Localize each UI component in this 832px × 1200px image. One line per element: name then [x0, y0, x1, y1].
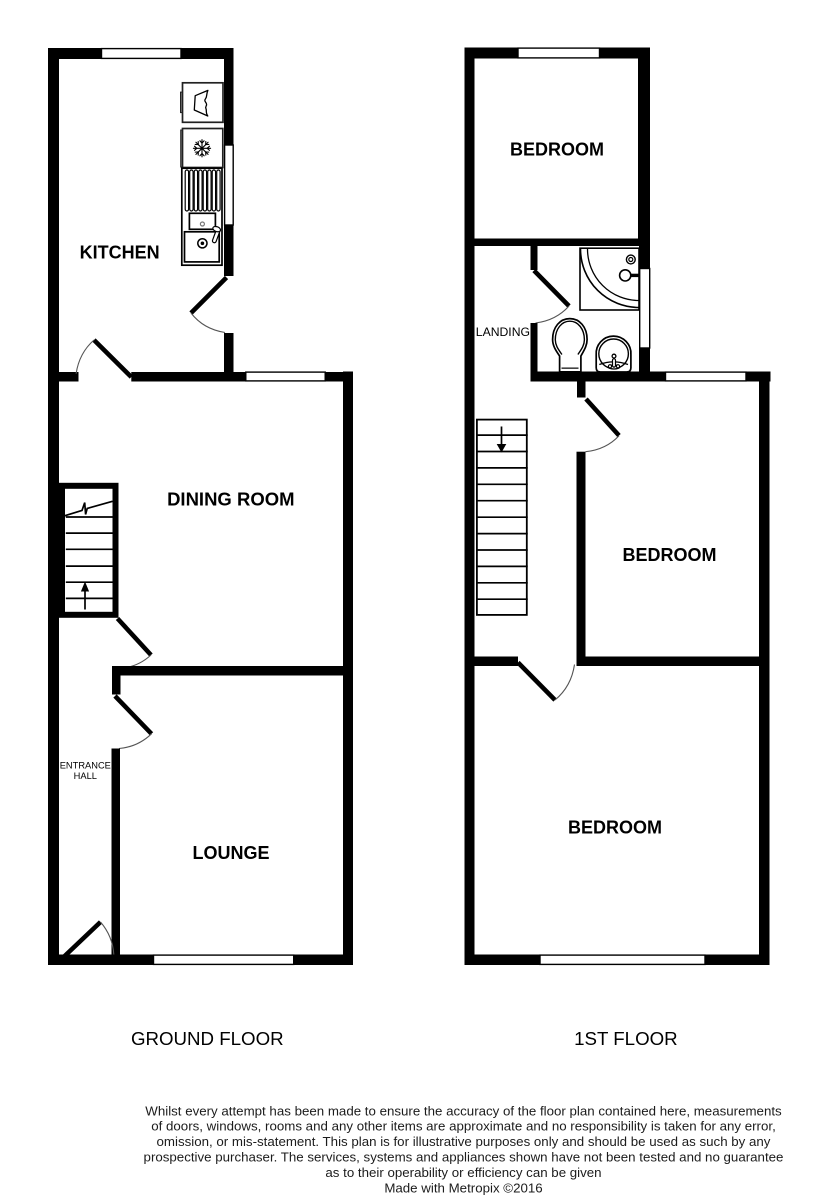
svg-text:Made with Metropix ©2016: Made with Metropix ©2016 [384, 1180, 542, 1195]
svg-text:as to their operability or eff: as to their operability or efficiency ca… [325, 1165, 601, 1180]
svg-text:LANDING: LANDING [476, 325, 530, 339]
svg-text:BEDROOM: BEDROOM [568, 818, 662, 838]
svg-text:ENTRANCE: ENTRANCE [60, 761, 111, 771]
svg-text:HALL: HALL [74, 771, 97, 781]
svg-text:KITCHEN: KITCHEN [80, 242, 160, 262]
svg-text:BEDROOM: BEDROOM [510, 139, 604, 159]
svg-text:GROUND FLOOR: GROUND FLOOR [131, 1028, 284, 1049]
svg-text:BEDROOM: BEDROOM [623, 545, 717, 565]
svg-text:omission, or mis-statement. Th: omission, or mis-statement. This plan is… [157, 1134, 771, 1149]
svg-text:1ST FLOOR: 1ST FLOOR [574, 1028, 678, 1049]
svg-text:DINING ROOM: DINING ROOM [167, 489, 294, 510]
svg-text:prospective purchaser. The ser: prospective purchaser. The services, sys… [144, 1150, 784, 1165]
svg-text:LOUNGE: LOUNGE [192, 843, 269, 863]
svg-text:Whilst every attempt has been: Whilst every attempt has been made to en… [145, 1103, 782, 1118]
svg-text:of doors, windows, rooms and a: of doors, windows, rooms and any other i… [151, 1119, 776, 1134]
